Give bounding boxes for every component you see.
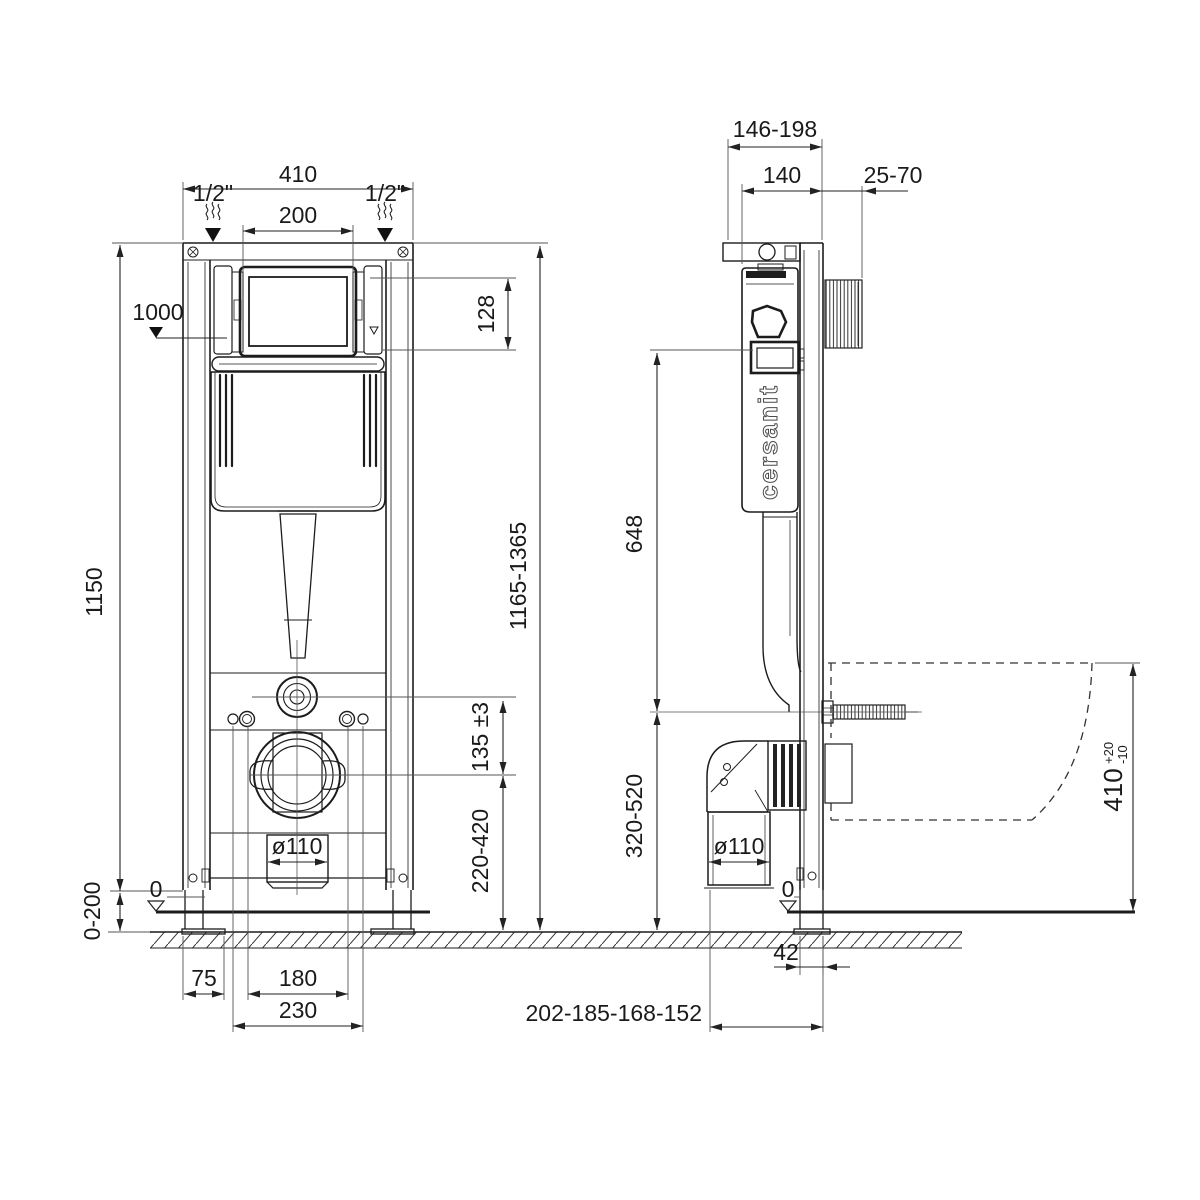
dim-depth-total: 146-198	[733, 116, 817, 142]
wall-bracket	[723, 243, 800, 261]
screw-icon	[188, 247, 198, 257]
dim-fixing-span-outer: 230	[279, 997, 317, 1023]
cistern-side: cersanit	[742, 264, 804, 512]
flush-valve	[752, 306, 786, 337]
dim-button-height: 1000	[132, 299, 183, 325]
side-view: cersanit	[650, 243, 1092, 934]
dim-opening-width: 200	[279, 202, 317, 228]
dim-wall-clearance: 25-70	[864, 162, 923, 188]
dim-profile-depth: 42	[773, 939, 799, 965]
dim-opening-height: 128	[473, 295, 499, 333]
drain-elbow	[704, 741, 806, 888]
dim-bowl-height-plus: +20	[1101, 742, 1116, 764]
dim-flush-offset: 135 ±3	[467, 702, 493, 772]
front-view	[182, 243, 414, 934]
floor	[150, 912, 1135, 948]
cistern-lid	[746, 271, 786, 278]
dim-foot-width: 75	[191, 965, 217, 991]
dim-flush-drop: 648	[621, 515, 647, 553]
right-leg	[371, 869, 414, 934]
dim-frame-height: 1150	[81, 567, 107, 616]
dim-width-total: 410	[279, 161, 317, 187]
dim-supply-left: 1/2"	[193, 180, 233, 206]
dimensions: 410 200 1/2" 1/2" 1000 128 1150 1165-136…	[79, 116, 1140, 1032]
bowl-outlet-stub	[825, 744, 852, 803]
wall-anchor-block	[825, 280, 862, 348]
dim-leg-adjustment: 0-200	[79, 882, 105, 941]
brand-logo: cersanit	[753, 384, 783, 500]
dim-fixing-span-inner: 180	[279, 965, 317, 991]
wc-bowl-outline	[828, 663, 1092, 820]
dim-bowl-height-minus: -10	[1115, 745, 1130, 764]
access-opening	[240, 267, 356, 356]
drawing-page: cersanit	[0, 0, 1200, 1200]
water-supply-arrow-icon	[377, 202, 393, 242]
dim-total-height-range: 1165-1365	[505, 522, 531, 630]
dim-outlet-dia-side: ø110	[714, 833, 765, 859]
water-supply-arrow-icon	[205, 202, 221, 242]
cistern-front	[211, 372, 385, 511]
dim-supply-right: 1/2"	[365, 180, 405, 206]
flush-pipe-side	[763, 512, 801, 712]
dim-bowl-height-value: 410	[1098, 768, 1128, 811]
fixing-holes	[228, 712, 368, 727]
dim-outlet-dia-front: ø110	[272, 833, 323, 859]
flush-pipe-front	[280, 514, 316, 658]
screw-icon	[398, 247, 408, 257]
dim-drain-height-front: 220-420	[467, 809, 493, 893]
dim-drain-height-side: 320-520	[621, 774, 647, 858]
level-mark-icon	[370, 327, 378, 334]
cistern-ribs	[220, 375, 376, 466]
dim-outlet-wall-distances: 202-185-168-152	[526, 1000, 702, 1026]
dim-floor-zero-side: 0	[782, 876, 795, 902]
dim-bowl-height: 410 +20 -10	[1098, 742, 1130, 812]
technical-drawing: cersanit	[0, 0, 1200, 1200]
left-leg	[182, 869, 225, 934]
dim-floor-zero-front: 0	[150, 876, 163, 902]
dim-frame-depth: 140	[763, 162, 801, 188]
